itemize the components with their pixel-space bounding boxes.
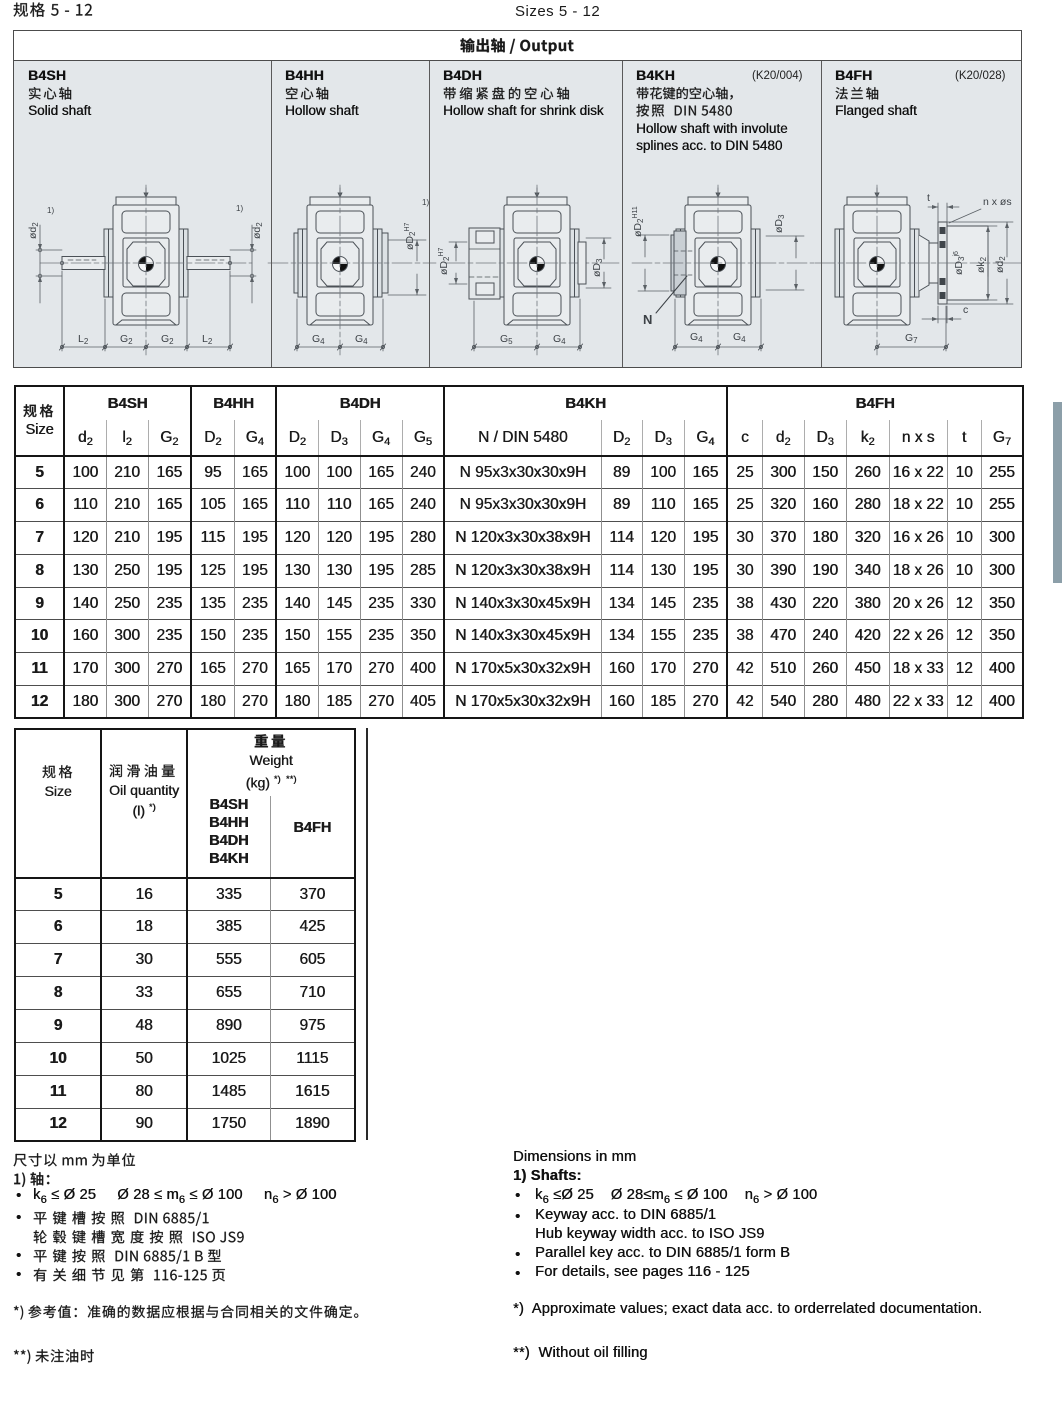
svg-text:G4: G4 — [355, 333, 368, 346]
svg-text:øD3: øD3 — [773, 214, 786, 233]
svg-text:G4: G4 — [733, 331, 746, 344]
svg-text:t: t — [927, 192, 930, 204]
svg-text:øD2H11: øD2H11 — [632, 206, 645, 237]
svg-text:ød2: ød2 — [994, 256, 1007, 273]
svg-text:øD2H7: øD2H7 — [438, 247, 451, 275]
svg-text:n x øs: n x øs — [983, 196, 1012, 208]
svg-text:G5: G5 — [500, 333, 513, 346]
svg-text:G2: G2 — [161, 333, 174, 346]
svg-text:G7: G7 — [905, 332, 918, 345]
svg-text:N: N — [643, 312, 652, 327]
svg-text:L2: L2 — [202, 333, 213, 346]
svg-text:1): 1) — [236, 204, 243, 213]
svg-text:ød2: ød2 — [27, 222, 40, 239]
svg-text:c: c — [963, 304, 968, 316]
svg-text:øD2H7: øD2H7 — [404, 222, 417, 250]
svg-text:1): 1) — [47, 206, 54, 215]
svg-text:G4: G4 — [312, 333, 325, 346]
svg-text:G2: G2 — [120, 333, 133, 346]
svg-text:G4: G4 — [553, 333, 566, 346]
svg-text:G4: G4 — [690, 331, 703, 344]
svg-text:L2: L2 — [78, 333, 89, 346]
svg-text:øD3: øD3 — [591, 258, 604, 277]
svg-text:ød2: ød2 — [251, 222, 264, 239]
